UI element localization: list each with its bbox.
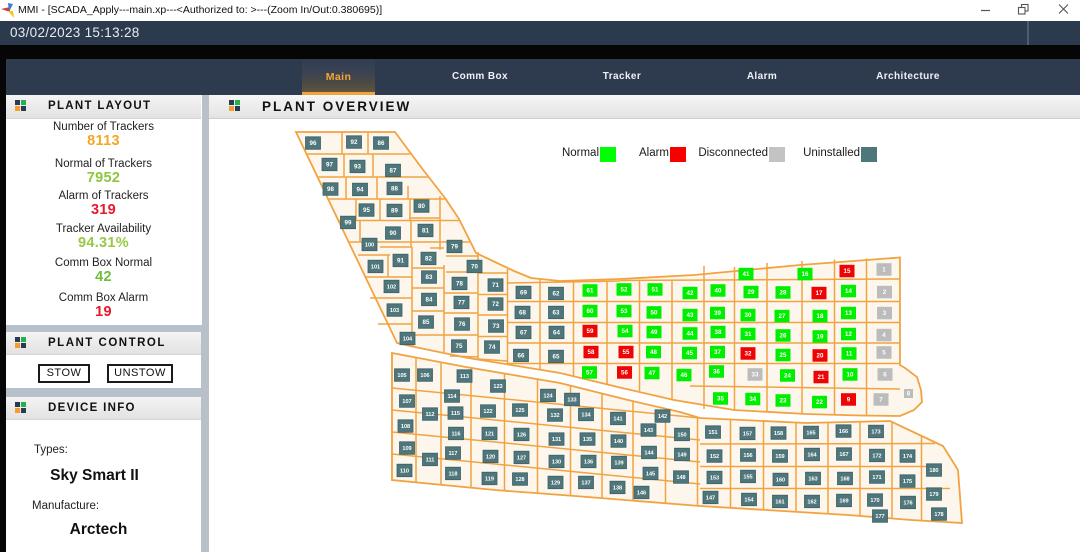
svg-text:51: 51 (652, 287, 659, 294)
svg-text:91: 91 (397, 258, 404, 265)
svg-text:13: 13 (845, 310, 852, 317)
svg-text:62: 62 (553, 291, 560, 298)
svg-text:93: 93 (354, 164, 361, 171)
svg-text:94: 94 (357, 187, 364, 194)
svg-text:159: 159 (775, 454, 784, 460)
svg-text:162: 162 (807, 500, 816, 506)
svg-text:143: 143 (644, 428, 653, 434)
svg-text:127: 127 (517, 456, 526, 462)
svg-text:24: 24 (784, 373, 791, 380)
svg-text:119: 119 (485, 477, 494, 483)
svg-text:136: 136 (584, 460, 593, 466)
svg-text:89: 89 (391, 208, 398, 215)
svg-text:38: 38 (715, 329, 722, 336)
svg-text:152: 152 (710, 454, 719, 460)
svg-text:4: 4 (882, 332, 886, 339)
svg-text:118: 118 (448, 472, 457, 478)
svg-text:7: 7 (879, 397, 883, 404)
svg-text:101: 101 (371, 265, 380, 271)
svg-text:131: 131 (552, 437, 561, 443)
svg-text:172: 172 (872, 454, 881, 460)
svg-text:48: 48 (650, 349, 657, 356)
svg-text:45: 45 (686, 350, 693, 357)
svg-text:85: 85 (423, 319, 430, 326)
svg-text:171: 171 (872, 475, 881, 481)
svg-text:90: 90 (390, 230, 397, 237)
svg-text:12: 12 (845, 331, 852, 338)
svg-text:53: 53 (621, 308, 628, 315)
svg-text:43: 43 (687, 312, 694, 319)
svg-text:161: 161 (775, 500, 784, 506)
svg-text:84: 84 (426, 297, 433, 304)
svg-text:78: 78 (456, 281, 463, 288)
svg-text:17: 17 (816, 290, 823, 297)
svg-text:139: 139 (614, 461, 623, 467)
svg-text:144: 144 (644, 451, 654, 457)
svg-text:99: 99 (345, 220, 352, 227)
svg-text:26: 26 (780, 333, 787, 340)
svg-text:102: 102 (387, 285, 396, 291)
svg-text:167: 167 (839, 452, 848, 458)
svg-text:44: 44 (687, 331, 694, 338)
svg-text:88: 88 (391, 186, 398, 193)
svg-text:54: 54 (622, 328, 629, 335)
svg-text:145: 145 (646, 472, 655, 478)
svg-text:133: 133 (567, 398, 576, 404)
svg-text:19: 19 (817, 334, 824, 341)
svg-text:59: 59 (587, 328, 594, 335)
svg-text:111: 111 (426, 458, 435, 464)
svg-text:20: 20 (817, 353, 824, 360)
svg-text:107: 107 (402, 399, 411, 405)
svg-text:80: 80 (418, 203, 425, 210)
svg-text:49: 49 (651, 329, 658, 336)
svg-text:134: 134 (581, 413, 591, 419)
svg-text:39: 39 (714, 310, 721, 317)
svg-text:6: 6 (883, 372, 887, 379)
svg-text:1: 1 (882, 267, 886, 274)
svg-text:63: 63 (553, 310, 560, 317)
svg-text:82: 82 (425, 256, 432, 263)
svg-text:112: 112 (425, 412, 434, 418)
svg-text:129: 129 (551, 481, 560, 487)
svg-text:79: 79 (451, 244, 458, 251)
svg-text:57: 57 (586, 370, 593, 377)
svg-text:106: 106 (420, 373, 429, 379)
svg-text:37: 37 (714, 349, 721, 356)
svg-text:61: 61 (587, 288, 594, 295)
svg-text:116: 116 (451, 432, 460, 438)
svg-text:142: 142 (658, 414, 667, 420)
svg-text:46: 46 (681, 372, 688, 379)
svg-text:10: 10 (847, 372, 854, 379)
svg-text:180: 180 (929, 468, 938, 474)
svg-text:56: 56 (621, 370, 628, 377)
svg-text:92: 92 (351, 139, 358, 146)
svg-text:124: 124 (543, 394, 553, 400)
svg-text:2: 2 (883, 289, 887, 296)
svg-text:68: 68 (519, 310, 526, 317)
svg-text:178: 178 (934, 512, 943, 518)
svg-text:163: 163 (808, 477, 817, 483)
svg-text:105: 105 (397, 373, 406, 379)
svg-text:109: 109 (402, 446, 411, 452)
svg-text:123: 123 (493, 384, 502, 390)
svg-text:146: 146 (637, 491, 646, 497)
svg-text:135: 135 (583, 437, 592, 443)
svg-text:104: 104 (403, 337, 413, 343)
svg-text:132: 132 (550, 413, 559, 419)
svg-text:170: 170 (870, 498, 879, 504)
svg-text:126: 126 (517, 433, 526, 439)
svg-text:120: 120 (486, 455, 495, 461)
svg-text:81: 81 (422, 228, 429, 235)
svg-text:52: 52 (621, 287, 628, 294)
svg-text:14: 14 (845, 288, 852, 295)
svg-text:16: 16 (802, 271, 809, 278)
svg-text:74: 74 (489, 344, 496, 351)
svg-text:83: 83 (426, 274, 433, 281)
svg-text:110: 110 (400, 469, 409, 475)
svg-text:33: 33 (752, 372, 759, 379)
svg-text:150: 150 (677, 433, 686, 439)
svg-text:179: 179 (929, 492, 938, 498)
svg-text:40: 40 (715, 288, 722, 295)
svg-text:86: 86 (378, 140, 385, 147)
svg-text:29: 29 (748, 289, 755, 296)
svg-text:71: 71 (492, 282, 499, 289)
svg-text:177: 177 (875, 514, 884, 520)
svg-text:11: 11 (846, 351, 853, 358)
svg-text:9: 9 (847, 397, 851, 404)
svg-text:70: 70 (471, 264, 478, 271)
svg-text:15: 15 (844, 268, 851, 275)
svg-text:121: 121 (485, 432, 494, 438)
svg-text:36: 36 (713, 369, 720, 376)
svg-text:103: 103 (390, 308, 399, 314)
svg-text:149: 149 (677, 453, 686, 459)
svg-text:174: 174 (903, 454, 913, 460)
svg-text:137: 137 (581, 481, 590, 487)
svg-text:176: 176 (903, 501, 912, 507)
svg-text:157: 157 (743, 432, 752, 438)
svg-text:42: 42 (687, 290, 694, 297)
svg-text:140: 140 (614, 439, 623, 445)
svg-text:164: 164 (807, 453, 817, 459)
svg-text:151: 151 (708, 430, 717, 436)
svg-text:117: 117 (448, 451, 457, 457)
svg-text:168: 168 (840, 477, 849, 483)
svg-text:153: 153 (710, 476, 719, 482)
svg-text:169: 169 (839, 499, 848, 505)
svg-text:75: 75 (456, 343, 463, 350)
svg-text:47: 47 (649, 370, 656, 377)
svg-text:8: 8 (907, 391, 911, 398)
svg-text:108: 108 (401, 424, 410, 430)
svg-text:60: 60 (587, 308, 594, 315)
svg-text:28: 28 (780, 290, 787, 297)
svg-text:18: 18 (817, 313, 824, 320)
svg-text:21: 21 (818, 374, 825, 381)
svg-text:147: 147 (706, 496, 715, 502)
svg-text:122: 122 (483, 409, 492, 415)
svg-text:125: 125 (515, 408, 524, 414)
svg-text:55: 55 (623, 349, 630, 356)
svg-text:166: 166 (839, 429, 848, 435)
svg-text:35: 35 (717, 396, 724, 403)
svg-text:3: 3 (883, 310, 887, 317)
svg-text:32: 32 (745, 351, 752, 358)
svg-text:58: 58 (588, 349, 595, 356)
svg-text:114: 114 (447, 394, 457, 400)
svg-text:155: 155 (743, 475, 752, 481)
svg-text:22: 22 (816, 399, 823, 406)
svg-text:158: 158 (774, 431, 783, 437)
svg-text:141: 141 (613, 417, 622, 423)
svg-text:95: 95 (363, 207, 370, 214)
svg-text:27: 27 (779, 313, 786, 320)
svg-text:5: 5 (882, 350, 886, 357)
svg-text:77: 77 (458, 300, 465, 307)
svg-text:72: 72 (492, 301, 499, 308)
svg-text:115: 115 (451, 411, 460, 417)
svg-text:160: 160 (776, 478, 785, 484)
svg-text:175: 175 (903, 479, 912, 485)
svg-text:69: 69 (520, 290, 527, 297)
svg-text:97: 97 (326, 162, 333, 169)
svg-text:113: 113 (460, 374, 469, 380)
svg-text:31: 31 (745, 331, 752, 338)
svg-text:73: 73 (493, 323, 500, 330)
svg-text:98: 98 (327, 186, 334, 193)
svg-text:23: 23 (780, 398, 787, 405)
svg-text:173: 173 (871, 430, 880, 436)
svg-text:100: 100 (365, 243, 374, 249)
svg-text:41: 41 (743, 271, 750, 278)
svg-text:76: 76 (459, 321, 466, 328)
svg-text:67: 67 (520, 330, 527, 337)
svg-text:30: 30 (745, 312, 752, 319)
svg-text:138: 138 (613, 486, 622, 492)
svg-text:154: 154 (744, 498, 754, 504)
svg-text:165: 165 (806, 431, 815, 437)
svg-text:156: 156 (743, 453, 752, 459)
svg-text:96: 96 (310, 140, 317, 147)
svg-text:64: 64 (553, 330, 560, 337)
svg-text:148: 148 (676, 475, 685, 481)
svg-text:130: 130 (552, 460, 561, 466)
svg-text:25: 25 (780, 352, 787, 359)
svg-text:87: 87 (390, 168, 397, 175)
svg-text:34: 34 (749, 396, 756, 403)
svg-text:50: 50 (651, 310, 658, 317)
svg-text:66: 66 (518, 353, 525, 360)
svg-text:65: 65 (553, 354, 560, 361)
svg-text:128: 128 (515, 477, 524, 483)
